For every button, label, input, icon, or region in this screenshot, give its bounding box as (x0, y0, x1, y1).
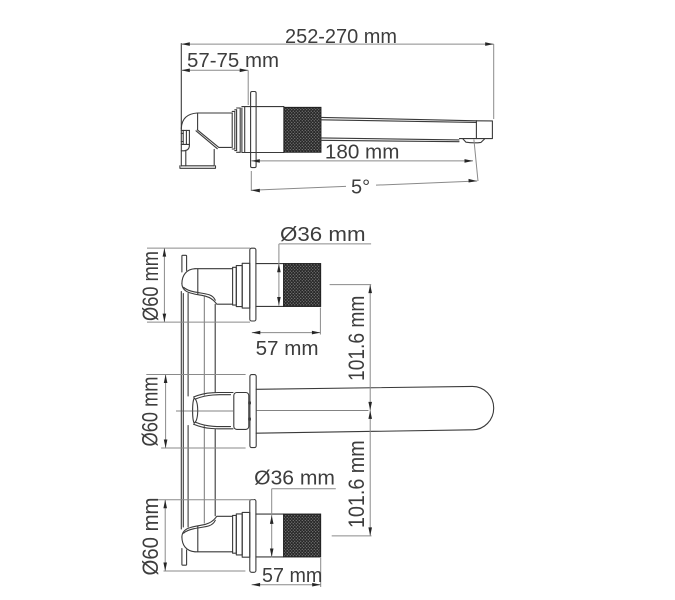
svg-text:101.6 mm: 101.6 mm (344, 296, 369, 381)
svg-text:Ø36 mm: Ø36 mm (254, 468, 335, 490)
svg-text:180 mm: 180 mm (325, 141, 400, 163)
svg-text:57 mm: 57 mm (256, 338, 319, 360)
svg-text:Ø36 mm: Ø36 mm (280, 224, 366, 246)
svg-text:252-270 mm: 252-270 mm (285, 26, 397, 48)
svg-text:Ø60 mm: Ø60 mm (138, 498, 163, 576)
svg-text:57-75 mm: 57-75 mm (187, 50, 279, 72)
svg-text:5°: 5° (351, 177, 370, 199)
svg-text:Ø60 mm: Ø60 mm (138, 251, 163, 321)
svg-text:Ø60 mm: Ø60 mm (138, 377, 163, 447)
svg-text:101.6 mm: 101.6 mm (344, 440, 369, 528)
svg-text:57 mm: 57 mm (262, 565, 322, 587)
